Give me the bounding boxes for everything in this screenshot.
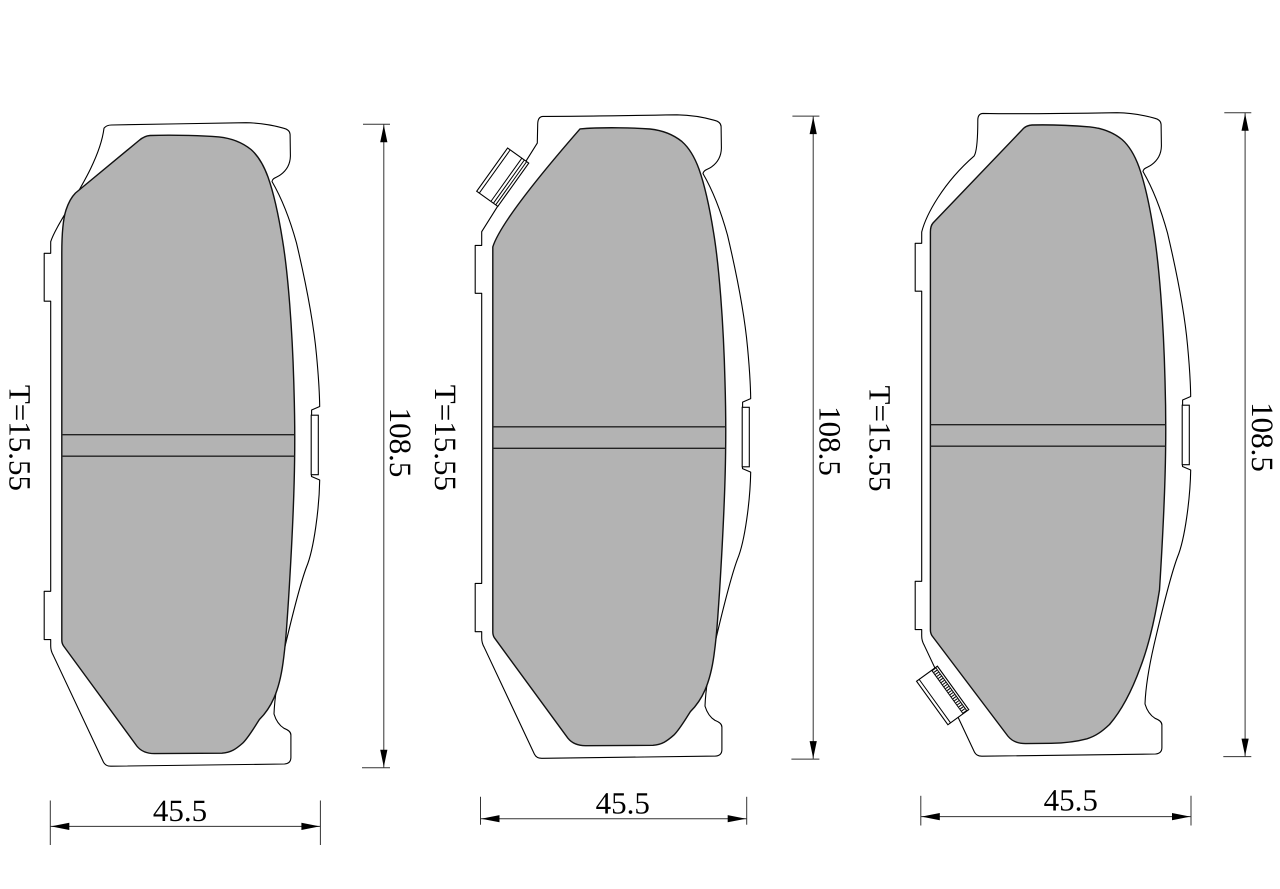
- svg-text:T=15.55: T=15.55: [428, 385, 463, 491]
- svg-text:108.5: 108.5: [1245, 402, 1280, 472]
- svg-text:45.5: 45.5: [1044, 783, 1098, 818]
- svg-text:108.5: 108.5: [383, 408, 418, 478]
- svg-text:108.5: 108.5: [813, 406, 848, 476]
- svg-text:T=15.55: T=15.55: [863, 386, 898, 492]
- svg-text:T=15.55: T=15.55: [3, 385, 38, 491]
- svg-text:45.5: 45.5: [153, 793, 207, 828]
- svg-text:45.5: 45.5: [596, 786, 650, 821]
